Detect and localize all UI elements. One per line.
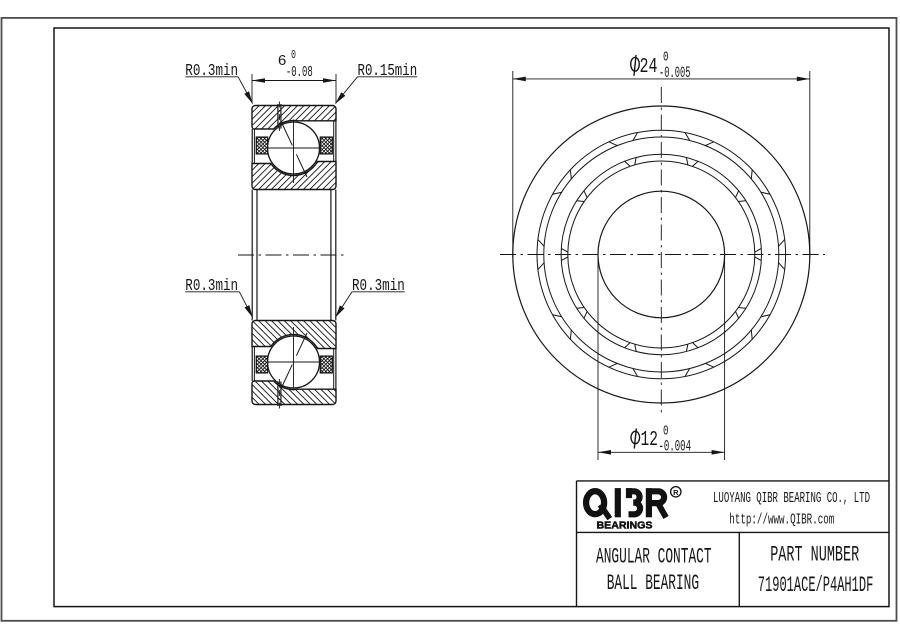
svg-text:12: 12 bbox=[641, 428, 659, 452]
svg-text:LUOYANG QIBR BEARING CO., LTD: LUOYANG QIBR BEARING CO., LTD bbox=[713, 490, 870, 507]
svg-text:R0.3min: R0.3min bbox=[185, 277, 238, 296]
svg-text:PART NUMBER: PART NUMBER bbox=[770, 543, 859, 568]
svg-text:-0.004: -0.004 bbox=[659, 438, 692, 456]
svg-text:-0.08: -0.08 bbox=[286, 65, 313, 81]
svg-text:BALL BEARING: BALL BEARING bbox=[607, 571, 699, 596]
svg-text:R0.15min: R0.15min bbox=[358, 62, 418, 81]
svg-text:-0.005: -0.005 bbox=[659, 64, 691, 82]
svg-text:71901ACE/P4AH1DF: 71901ACE/P4AH1DF bbox=[758, 573, 874, 598]
svg-text:R0.3min: R0.3min bbox=[352, 277, 405, 296]
svg-text:R: R bbox=[673, 488, 679, 497]
svg-text:http://www.QIBR.com: http://www.QIBR.com bbox=[729, 511, 834, 528]
svg-text:24: 24 bbox=[640, 55, 658, 79]
svg-text:BEARINGS: BEARINGS bbox=[597, 519, 653, 531]
svg-text:R0.3min: R0.3min bbox=[185, 62, 238, 81]
svg-text:0: 0 bbox=[291, 49, 296, 62]
svg-text:ANGULAR CONTACT: ANGULAR CONTACT bbox=[596, 544, 712, 569]
